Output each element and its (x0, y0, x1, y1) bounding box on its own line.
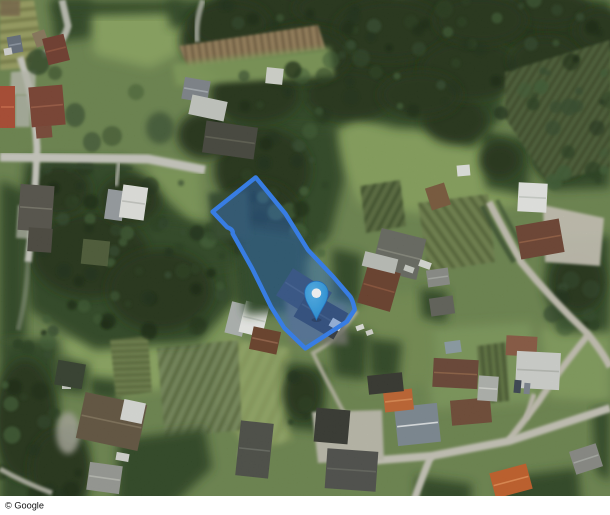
svg-text:© Google: © Google (5, 501, 44, 511)
